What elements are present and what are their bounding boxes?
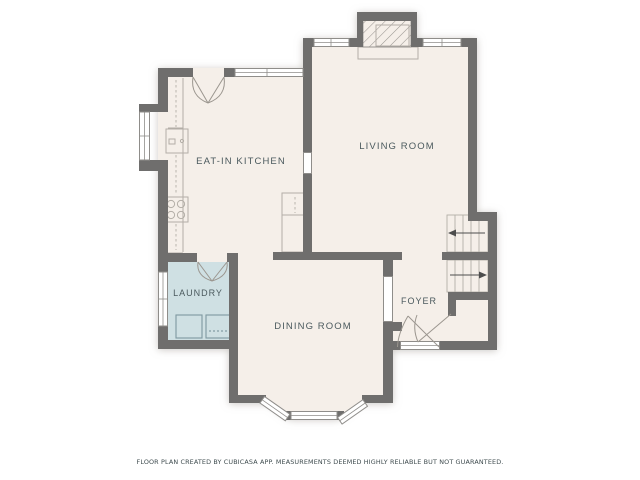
floor-plates: [158, 12, 497, 419]
living-window-left: [314, 39, 349, 47]
label-foyer: FOYER: [401, 296, 437, 306]
dining-floor-lower: [229, 341, 393, 403]
label-dining-room: DINING ROOM: [274, 321, 352, 332]
living-window-right: [423, 39, 461, 47]
label-living-room: LIVING ROOM: [359, 141, 434, 152]
dining-foyer-opening: [384, 277, 393, 322]
living-room-floor: [303, 38, 477, 221]
footer-disclaimer: FLOOR PLAN CREATED BY CUBICASA APP. MEAS…: [137, 458, 504, 466]
floor-plan-page: EAT-IN KITCHEN LIVING ROOM LAUNDRY DININ…: [0, 0, 640, 480]
kitchen-bay-window: [140, 112, 150, 160]
kitchen-living-opening: [304, 153, 312, 174]
floor-plan-drawing: EAT-IN KITCHEN LIVING ROOM LAUNDRY DININ…: [0, 0, 640, 480]
kitchen-top-window: [235, 69, 303, 77]
laundry-floor: [168, 262, 229, 340]
laundry-window: [159, 272, 168, 326]
fireplace: [357, 12, 417, 21]
entry-threshold: [401, 342, 440, 350]
label-eat-in-kitchen: EAT-IN KITCHEN: [196, 156, 286, 167]
fireplace-hatch: [363, 20, 411, 47]
label-laundry: LAUNDRY: [173, 288, 223, 298]
